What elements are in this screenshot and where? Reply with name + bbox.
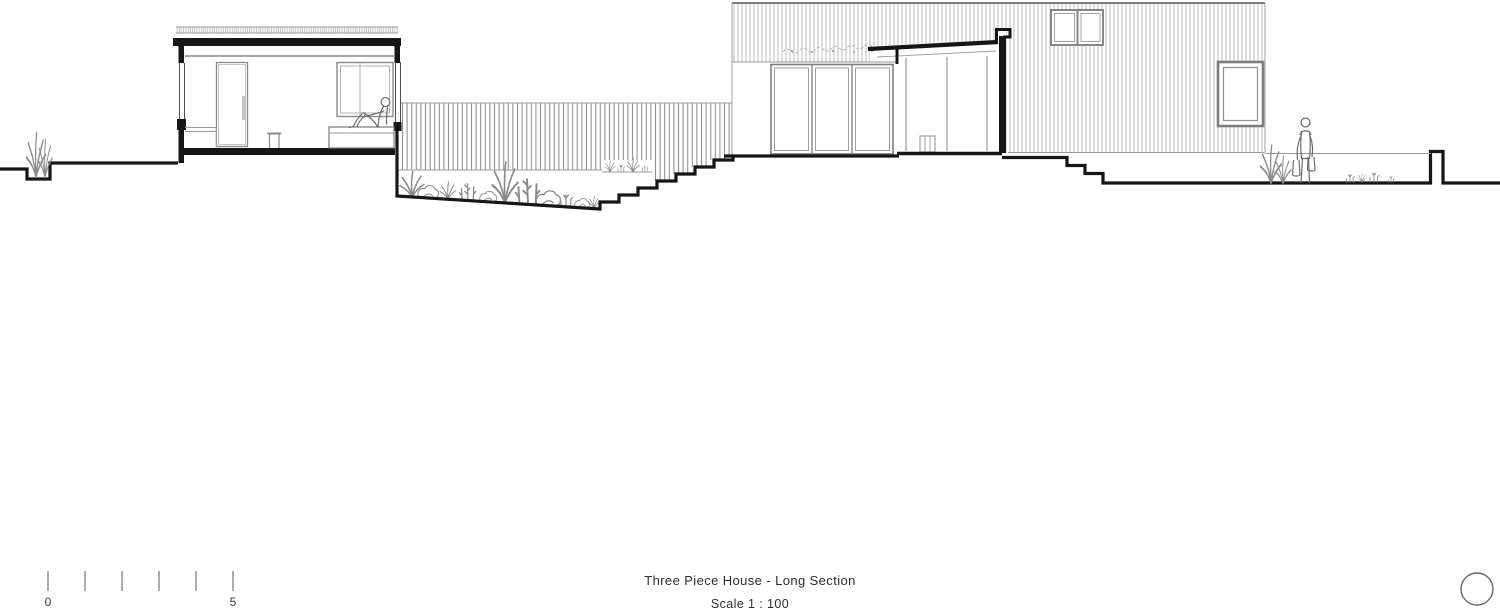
scale-end-label: 5 bbox=[230, 595, 237, 609]
ground-right-terrace bbox=[1002, 152, 1500, 184]
drawing-title: Three Piece House - Long Section bbox=[644, 573, 856, 588]
glazed-sliding-doors bbox=[771, 65, 893, 155]
interior-door bbox=[217, 63, 248, 147]
circle-marker bbox=[1461, 573, 1493, 605]
scale-start-label: 0 bbox=[45, 595, 52, 609]
drawing-scale-label: Scale 1 : 100 bbox=[711, 597, 789, 609]
facade-window bbox=[1218, 62, 1263, 126]
low-bench bbox=[185, 128, 216, 149]
ground-profile bbox=[0, 152, 1500, 184]
pavilion-left-wall bbox=[177, 45, 186, 163]
clerestory-window bbox=[1051, 10, 1103, 45]
pavilion-roof-cap bbox=[176, 27, 398, 33]
pavilion-floor-slab bbox=[183, 148, 395, 155]
left-planter bbox=[26, 133, 52, 177]
stool bbox=[268, 134, 282, 149]
door-handle-panel bbox=[242, 96, 246, 120]
scale-bar: 0 5 bbox=[45, 571, 237, 609]
slatted-screen bbox=[400, 103, 732, 181]
section-drawing: Three Piece House - Long Section Scale 1… bbox=[0, 0, 1500, 609]
main-house bbox=[732, 3, 1265, 156]
pavilion-right-wall bbox=[394, 45, 402, 131]
step-ledge-plants bbox=[602, 158, 654, 172]
interior-window bbox=[337, 63, 393, 117]
drawing-sheet: Three Piece House - Long Section Scale 1… bbox=[0, 0, 1500, 609]
ground-left bbox=[0, 163, 178, 179]
standing-figure bbox=[1293, 118, 1316, 183]
pavilion-roof-slab bbox=[173, 38, 401, 46]
title-block: Three Piece House - Long Section Scale 1… bbox=[644, 573, 856, 609]
left-pavilion bbox=[173, 27, 402, 163]
terrace-plants bbox=[1261, 146, 1395, 184]
bag-left bbox=[1293, 161, 1301, 177]
bed bbox=[329, 127, 394, 148]
